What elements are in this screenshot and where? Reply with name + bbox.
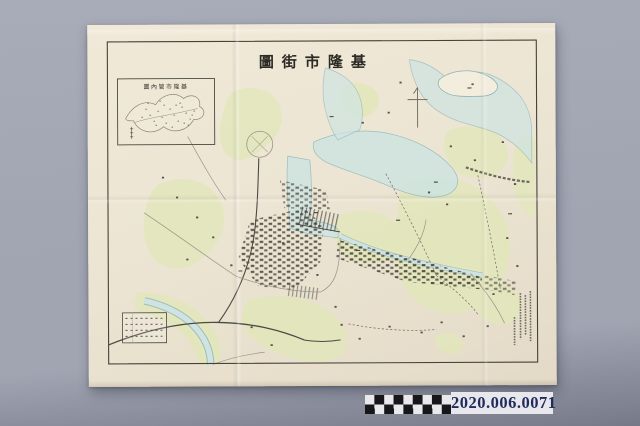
inset-scale-mark: [130, 127, 133, 139]
legend-box: [122, 313, 166, 343]
catalog-number-label: 2020.006.0071: [451, 392, 553, 414]
inset-landmass: [126, 94, 204, 132]
photo-scale-bar: [365, 395, 451, 414]
map-artwork: [87, 23, 557, 387]
photo-stage: 圖街市隆基 圖內管市隆基 2020.006.0071: [0, 0, 640, 426]
map-sheet: 圖街市隆基 圖內管市隆基: [87, 23, 557, 387]
inset-map-title: 圖內管市隆基: [117, 81, 214, 90]
north-bay: [323, 68, 362, 140]
main-harbor-basin: [313, 131, 458, 198]
map-title: 圖街市隆基: [237, 51, 387, 73]
